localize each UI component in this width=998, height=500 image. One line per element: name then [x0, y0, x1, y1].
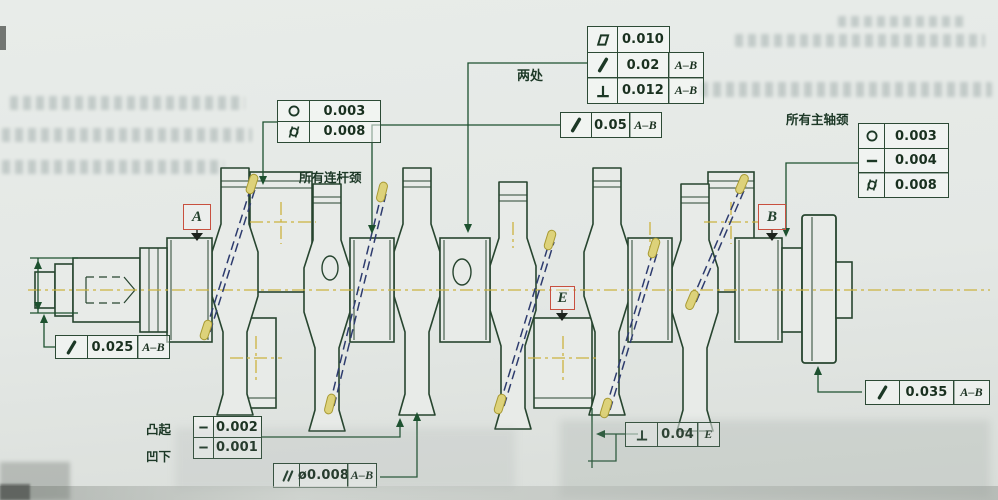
fcf-raised-recessed: 0.002 0.001 [193, 416, 262, 459]
label-recessed: 凹下 [146, 446, 171, 465]
circular-runout-icon [587, 52, 618, 79]
fcf-row: 0.001 [193, 437, 262, 459]
tolerance-value: 0.003 [884, 123, 949, 149]
fcf-row: 0.025 A–B [55, 335, 170, 359]
circular-runout-icon [55, 335, 88, 359]
datum-b-letter: B [767, 209, 777, 226]
tolerance-value: 0.002 [213, 416, 262, 438]
cylindricity-icon [858, 172, 885, 198]
tolerance-value: 0.001 [213, 437, 262, 459]
tolerance-value: 0.025 [87, 335, 139, 359]
rear-flange [782, 215, 852, 363]
datum-e-label: E [550, 286, 575, 310]
tolerance-datum: A–B [953, 380, 990, 405]
tolerance-datum: A–B [347, 463, 377, 488]
tolerance-datum: E [697, 422, 720, 447]
cylindricity-icon [277, 121, 310, 143]
circularity-icon [277, 100, 310, 122]
perpendicularity-icon [625, 422, 658, 447]
tolerance-datum: A–B [668, 77, 704, 104]
scanned-page: A B E 两处 所有连杆颈 所有主轴颈 凸起 凹下 0.010 0.02 A–… [0, 0, 998, 500]
datum-a-letter: A [192, 209, 202, 226]
fcf-parallelism: ø0.008 A–B [273, 463, 377, 488]
fcf-runout-0035: 0.035 A–B [865, 380, 990, 405]
flatness-icon [587, 26, 618, 53]
fcf-row: 0.003 [858, 123, 949, 149]
tolerance-datum: A–B [137, 335, 170, 359]
fcf-row: 0.012 A–B [587, 77, 704, 104]
fcf-row: 0.003 [277, 100, 381, 122]
fcf-runout-0025: 0.025 A–B [55, 335, 170, 359]
fcf-row: 0.02 A–B [587, 52, 704, 79]
tolerance-value: 0.008 [309, 121, 381, 143]
tolerance-value: 0.05 [591, 112, 631, 138]
straightness-icon [858, 148, 885, 174]
circular-runout-icon [560, 112, 592, 138]
straightness-icon [193, 416, 214, 438]
straightness-icon [193, 437, 214, 459]
tolerance-value: 0.04 [657, 422, 699, 447]
fcf-top-stack: 0.010 0.02 A–B 0.012 A–B [587, 26, 704, 104]
datum-e-letter: E [557, 290, 567, 307]
tolerance-datum: A–B [629, 112, 662, 138]
tolerance-value: 0.012 [617, 77, 670, 104]
tolerance-value: ø0.008 [299, 463, 349, 488]
label-two-places: 两处 [517, 65, 543, 84]
fcf-row: 0.002 [193, 416, 262, 438]
datum-b-label: B [758, 204, 786, 230]
fcf-runout-005: 0.05 A–B [560, 112, 662, 138]
fcf-row: 0.008 [858, 172, 949, 198]
fcf-row: 0.004 [858, 148, 949, 174]
fcf-row: 0.010 [587, 26, 704, 53]
circular-runout-icon [865, 380, 900, 405]
parallelism-icon [273, 463, 300, 488]
fcf-row: 0.008 [277, 121, 381, 143]
label-all-rod-journals: 所有连杆颈 [299, 167, 362, 186]
tolerance-value: 0.004 [884, 148, 949, 174]
fcf-row: ø0.008 A–B [273, 463, 377, 488]
fcf-main-journals: 0.003 0.004 0.008 [858, 123, 949, 198]
tolerance-value: 0.003 [309, 100, 381, 122]
fcf-row: 0.035 A–B [865, 380, 990, 405]
tolerance-value: 0.035 [899, 380, 955, 405]
datum-a-label: A [183, 204, 211, 230]
perpendicularity-icon [587, 77, 618, 104]
tolerance-datum: A–B [668, 52, 704, 79]
label-all-main-journals: 所有主轴颈 [786, 109, 849, 128]
fcf-rod-journals: 0.003 0.008 [277, 100, 381, 143]
fcf-row: 0.04 E [625, 422, 720, 447]
tolerance-value: 0.02 [617, 52, 670, 79]
label-raised: 凸起 [146, 419, 171, 438]
tolerance-value: 0.008 [884, 172, 949, 198]
fcf-row: 0.05 A–B [560, 112, 662, 138]
circularity-icon [858, 123, 885, 149]
fcf-perpendicularity-e: 0.04 E [625, 422, 720, 447]
tolerance-value: 0.010 [617, 26, 670, 53]
